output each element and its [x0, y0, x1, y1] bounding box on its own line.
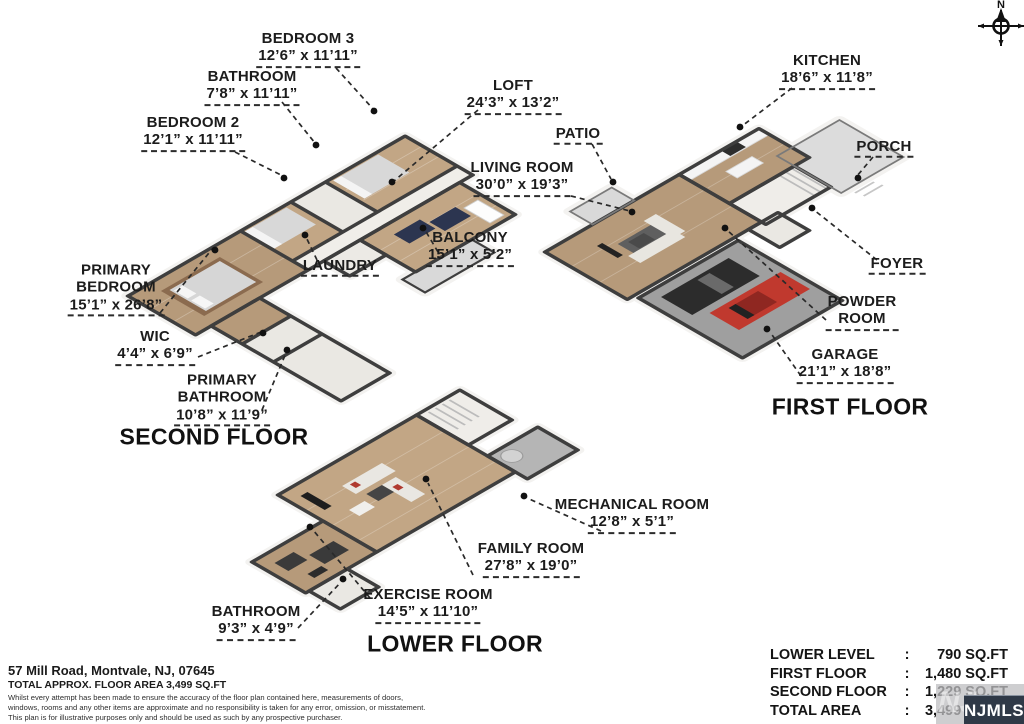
- room-dimensions: 9’3” x 4’9”: [216, 621, 296, 641]
- room-dimensions: 15’1” x 5’2”: [426, 247, 514, 267]
- room-name: FOYER: [869, 255, 926, 275]
- disclaimer-line: This plan is for illustrative purposes o…: [8, 713, 648, 723]
- room-name: POWDER ROOM: [826, 293, 899, 331]
- label-porch: PORCH: [854, 138, 913, 158]
- room-name: BEDROOM 2: [147, 114, 240, 131]
- room-name: BALCONY: [432, 229, 508, 246]
- room-name: KITCHEN: [793, 52, 861, 69]
- area-table-row: LOWER LEVEL:790 SQ.FT: [770, 646, 1008, 665]
- label-bedroom2: BEDROOM 212’1” x 11’11”: [141, 114, 245, 152]
- label-wic: WIC4’4” x 6’9”: [115, 328, 195, 366]
- floor-title-second: SECOND FLOOR: [120, 424, 309, 451]
- label-garage: GARAGE21’1” x 18’8”: [797, 346, 894, 384]
- area-row-value: 1,480 SQ.FT: [916, 665, 1008, 684]
- label-balcony: BALCONY15’1” x 5’2”: [426, 229, 514, 267]
- total-area-line: TOTAL APPROX. FLOOR AREA 3,499 SQ.FT: [8, 679, 648, 691]
- room-name: PORCH: [854, 138, 913, 158]
- label-family-room: FAMILY ROOM27’8” x 19’0”: [478, 540, 584, 578]
- label-bedroom3: BEDROOM 312’6” x 11’11”: [256, 30, 360, 68]
- room-name: WIC: [140, 328, 170, 345]
- label-kitchen: KITCHEN18’6” x 11’8”: [779, 52, 875, 90]
- disclaimer: Whilst every attempt has been made to en…: [8, 693, 648, 723]
- area-row-separator: :: [898, 683, 916, 702]
- room-name: BATHROOM: [208, 68, 297, 85]
- room-dimensions: 14’5” x 11’10”: [376, 604, 480, 624]
- label-living-room: LIVING ROOM30’0” x 19’3”: [470, 159, 573, 197]
- area-row-separator: :: [898, 665, 916, 684]
- footer: 57 Mill Road, Montvale, NJ, 07645 TOTAL …: [8, 663, 648, 723]
- compass-icon: [978, 8, 1024, 46]
- room-dimensions: 4’4” x 6’9”: [115, 346, 195, 366]
- area-row-label: SECOND FLOOR: [770, 683, 898, 702]
- label-bathroom2: BATHROOM7’8” x 11’11”: [204, 68, 299, 106]
- label-exercise-room: EXERCISE ROOM14’5” x 11’10”: [363, 586, 492, 624]
- area-row-value: 790 SQ.FT: [916, 646, 1008, 665]
- label-powder-room: POWDER ROOM: [826, 293, 899, 331]
- room-name: BATHROOM: [212, 603, 301, 620]
- area-table-row: FIRST FLOOR:1,480 SQ.FT: [770, 665, 1008, 684]
- room-dimensions: 12’8” x 5’1”: [588, 514, 676, 534]
- room-dimensions: 15’1” x 26’8”: [68, 296, 165, 316]
- area-row-separator: :: [898, 646, 916, 665]
- disclaimer-line: windows, rooms and any other items are a…: [8, 703, 648, 713]
- area-row-label: LOWER LEVEL: [770, 646, 898, 665]
- label-primary-bathroom: PRIMARY BATHROOM10’8” x 11’9”: [174, 371, 270, 426]
- room-dimensions: 18’6” x 11’8”: [779, 70, 875, 90]
- room-name: GARAGE: [811, 346, 878, 363]
- room-name: PRIMARY BATHROOM: [178, 371, 267, 405]
- room-dimensions: 7’8” x 11’11”: [204, 86, 299, 106]
- room-name: LOFT: [493, 77, 533, 94]
- floor-title-first: FIRST FLOOR: [772, 394, 929, 421]
- njmls-logo: NJMLS: [964, 695, 1024, 724]
- room-name: EXERCISE ROOM: [363, 586, 492, 603]
- room-name: LAUNDRY: [301, 257, 379, 277]
- disclaimer-line: Whilst every attempt has been made to en…: [8, 693, 648, 703]
- room-name: FAMILY ROOM: [478, 540, 584, 557]
- room-name: MECHANICAL ROOM: [555, 496, 709, 513]
- address-line: 57 Mill Road, Montvale, NJ, 07645: [8, 663, 648, 678]
- area-row-label: TOTAL AREA: [770, 702, 898, 721]
- area-row-label: FIRST FLOOR: [770, 665, 898, 684]
- room-dimensions: 24’3” x 13’2”: [465, 95, 562, 115]
- label-loft: LOFT24’3” x 13’2”: [465, 77, 562, 115]
- room-name: PRIMARY BEDROOM: [76, 261, 156, 295]
- room-dimensions: 12’1” x 11’11”: [141, 132, 245, 152]
- room-dimensions: 27’8” x 19’0”: [483, 558, 580, 578]
- compass-north-label: N: [997, 0, 1005, 11]
- floor-plan-page: N BEDROOM 312’6” x 11’11”BATHROOM7’8” x …: [0, 0, 1024, 724]
- label-primary-bedroom: PRIMARY BEDROOM15’1” x 26’8”: [68, 261, 165, 316]
- area-row-separator: :: [898, 702, 916, 721]
- label-foyer: FOYER: [869, 255, 926, 275]
- room-dimensions: 21’1” x 18’8”: [797, 364, 894, 384]
- njmls-logo-text: NJMLS: [964, 701, 1024, 721]
- room-name: LIVING ROOM: [470, 159, 573, 176]
- label-mechanical-room: MECHANICAL ROOM12’8” x 5’1”: [555, 496, 709, 534]
- room-dimensions: 30’0” x 19’3”: [474, 177, 571, 197]
- label-laundry: LAUNDRY: [301, 257, 379, 277]
- room-dimensions: 12’6” x 11’11”: [256, 48, 360, 68]
- label-patio: PATIO: [554, 125, 603, 145]
- room-name: BEDROOM 3: [262, 30, 355, 47]
- room-name: PATIO: [554, 125, 603, 145]
- label-bathroom-lower: BATHROOM9’3” x 4’9”: [212, 603, 301, 641]
- floor-title-lower: LOWER FLOOR: [367, 631, 543, 658]
